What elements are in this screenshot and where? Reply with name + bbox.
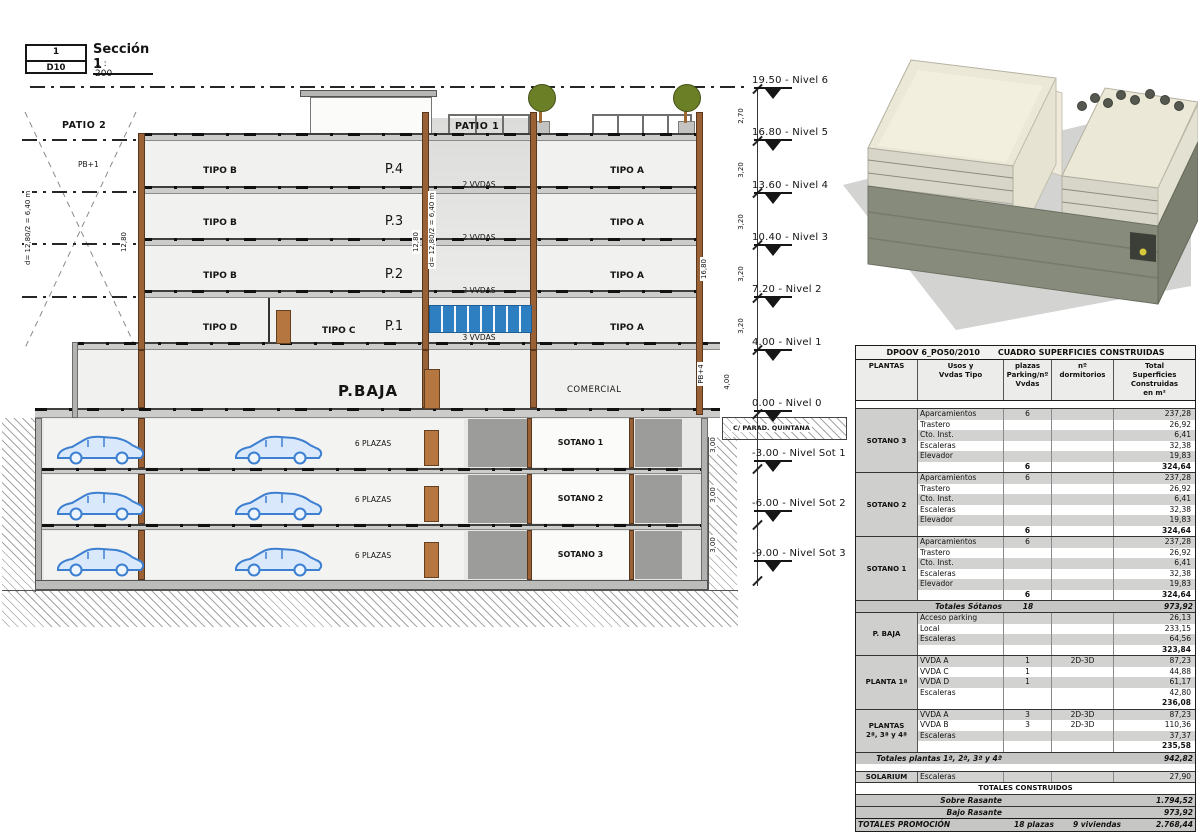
level-label: 16.80 - Nivel 5 — [752, 127, 852, 138]
table-group-rows: VVDA A12D-3D87,23VVDA C144,88VVDA D161,1… — [918, 656, 1195, 709]
level-marker: 16.80 - Nivel 5 — [752, 127, 852, 151]
cell-plazas — [1004, 430, 1052, 441]
table-row: Trastero26,92 — [918, 420, 1195, 431]
total-label: Totales Sótanos — [856, 601, 1004, 612]
total-dormitorios — [1052, 601, 1114, 612]
total-superficie: 973,92 — [1114, 601, 1195, 612]
cell-plazas — [1004, 515, 1052, 526]
cell-plazas: 6 — [1004, 409, 1052, 420]
cell-dormitorios — [1052, 409, 1114, 420]
level-triangle-icon — [765, 512, 781, 522]
final-viviendas: 9 viviendas — [1062, 819, 1132, 831]
cell-superficie: 6,41 — [1114, 430, 1193, 441]
cell-dormitorios — [1052, 590, 1114, 601]
cell-dormitorios — [1052, 462, 1114, 473]
cell-uso: Cto. Inst. — [918, 494, 1004, 505]
table-row: Local233,15 — [918, 624, 1195, 635]
cell-uso: Escaleras — [918, 505, 1004, 516]
level-label: -3.00 - Nivel Sot 1 — [752, 448, 852, 459]
cell-superficie: 64,56 — [1114, 634, 1193, 645]
table-row: Cto. Inst.6,41 — [918, 558, 1195, 569]
cell-superficie: 236,08 — [1114, 698, 1193, 709]
table-row: Escaleras32,38 — [918, 441, 1195, 452]
table-group-rows: Acceso parking26,13Local233,15Escaleras6… — [918, 613, 1195, 655]
cell-uso: Escaleras — [918, 731, 1004, 742]
cell-plazas — [1004, 494, 1052, 505]
table-row: Escaleras42,80 — [918, 688, 1195, 699]
table-total-row: Bajo Rasante973,92 — [856, 806, 1195, 818]
cell-dormitorios — [1052, 772, 1114, 783]
total-label: Sobre Rasante — [856, 795, 1004, 806]
cell-plazas — [1004, 698, 1052, 709]
cell-dormitorios — [1052, 645, 1114, 656]
table-planta-label: PLANTAS 2ª, 3ª y 4ª — [856, 710, 918, 752]
cell-plazas — [1004, 569, 1052, 580]
table-subtotal-row: 236,08 — [918, 698, 1195, 709]
cell-uso: VVDA A — [918, 656, 1004, 667]
cell-uso: Elevador — [918, 451, 1004, 462]
cell-dormitorios — [1052, 526, 1114, 537]
table-group-rows: VVDA A32D-3D87,23VVDA B32D-3D110,36Escal… — [918, 710, 1195, 752]
cell-plazas — [1004, 772, 1052, 783]
cell-uso: Escaleras — [918, 441, 1004, 452]
cell-dormitorios — [1052, 677, 1114, 688]
table-subtotal-row: 6324,64 — [918, 590, 1195, 601]
table-row: VVDA D161,17 — [918, 677, 1195, 688]
cell-uso — [918, 645, 1004, 656]
cell-uso: Trastero — [918, 548, 1004, 559]
table-spacer — [856, 401, 1195, 408]
table-subtotal-row: 235,58 — [918, 741, 1195, 752]
cell-dormitorios — [1052, 484, 1114, 495]
level-label: -6.00 - Nivel Sot 2 — [752, 498, 852, 509]
table-subtotal-row: 6324,64 — [918, 526, 1195, 537]
cell-plazas: 3 — [1004, 710, 1052, 721]
table-group: SOTANO 1Aparcamientos6237,28Trastero26,9… — [856, 536, 1195, 600]
cell-plazas — [1004, 451, 1052, 462]
cell-dormitorios — [1052, 548, 1114, 559]
cell-plazas — [1004, 645, 1052, 656]
level-marker: 19.50 - Nivel 6 — [752, 75, 852, 99]
cell-superficie: 37,37 — [1114, 731, 1193, 742]
table-spacer — [856, 764, 1195, 771]
drawing-sheet: { "title_block": { "number": "1", "sheet… — [0, 0, 1200, 812]
cell-uso — [918, 590, 1004, 601]
cell-uso — [918, 698, 1004, 709]
table-planta-label: P. BAJA — [856, 613, 918, 655]
table-row: Trastero26,92 — [918, 548, 1195, 559]
cell-plazas: 1 — [1004, 667, 1052, 678]
table-title: CUADRO SUPERFICIES CONSTRUIDAS — [998, 348, 1165, 357]
cell-dormitorios — [1052, 430, 1114, 441]
level-label: 19.50 - Nivel 6 — [752, 75, 852, 86]
cell-uso: VVDA D — [918, 677, 1004, 688]
cell-uso: VVDA A — [918, 710, 1004, 721]
total-plazas — [1004, 753, 1052, 764]
level-label: 10.40 - Nivel 3 — [752, 232, 852, 243]
level-label: 0.00 - Nivel 0 — [752, 398, 852, 409]
cell-plazas: 3 — [1004, 720, 1052, 731]
cell-uso: Elevador — [918, 515, 1004, 526]
table-row: VVDA A12D-3D87,23 — [918, 656, 1195, 667]
cell-dormitorios — [1052, 515, 1114, 526]
level-marker: -9.00 - Nivel Sot 3 — [752, 548, 852, 572]
final-label: TOTALES PROMOCIÓN — [856, 819, 1006, 831]
cell-plazas — [1004, 505, 1052, 516]
table-row: Aparcamientos6237,28 — [918, 537, 1195, 548]
table-group: PLANTAS 2ª, 3ª y 4ªVVDA A32D-3D87,23VVDA… — [856, 709, 1195, 752]
cell-superficie: 324,64 — [1114, 462, 1193, 473]
level-triangle-icon — [765, 298, 781, 308]
cell-dormitorios — [1052, 698, 1114, 709]
final-superficie: 2.768,44 — [1132, 819, 1195, 831]
cell-superficie: 26,92 — [1114, 484, 1193, 495]
table-row: Escaleras64,56 — [918, 634, 1195, 645]
table-group: PLANTA 1ªVVDA A12D-3D87,23VVDA C144,88VV… — [856, 655, 1195, 709]
cell-dormitorios — [1052, 494, 1114, 505]
table-total-row: Totales plantas 1ª, 2ª, 3ª y 4ª942,82 — [856, 752, 1195, 764]
total-plazas — [1004, 795, 1052, 806]
total-plazas: 18 — [1004, 601, 1052, 612]
cell-superficie: 42,80 — [1114, 688, 1193, 699]
level-marker: 7.20 - Nivel 2 — [752, 284, 852, 308]
table-ref: DPOOV 6_PO50/2010 — [887, 348, 980, 357]
cell-dormitorios: 2D-3D — [1052, 720, 1114, 731]
level-triangle-icon — [765, 194, 781, 204]
cell-uso: Escaleras — [918, 772, 1004, 783]
table-header: PLANTASUsos y Vvdas Tipoplazas Parking/n… — [856, 360, 1195, 401]
level-triangle-icon — [765, 412, 781, 422]
table-planta-label: SOLARIUM — [856, 772, 918, 783]
table-planta-label: PLANTA 1ª — [856, 656, 918, 709]
table-total-row: Sobre Rasante1.794,52 — [856, 794, 1195, 806]
table-row: Cto. Inst.6,41 — [918, 494, 1195, 505]
cell-superficie: 324,64 — [1114, 526, 1193, 537]
table-row: Escaleras37,37 — [918, 731, 1195, 742]
cell-dormitorios — [1052, 473, 1114, 484]
level-label: 13.60 - Nivel 4 — [752, 180, 852, 191]
cell-dormitorios — [1052, 537, 1114, 548]
cell-plazas — [1004, 688, 1052, 699]
cell-uso: Acceso parking — [918, 613, 1004, 624]
table-row: Cto. Inst.6,41 — [918, 430, 1195, 441]
cell-superficie: 32,38 — [1114, 505, 1193, 516]
level-label: 7.20 - Nivel 2 — [752, 284, 852, 295]
surface-table: DPOOV 6_PO50/2010 CUADRO SUPERFICIES CON… — [855, 345, 1196, 832]
level-marker: 0.00 - Nivel 0 — [752, 398, 852, 422]
cell-superficie: 19,83 — [1114, 451, 1193, 462]
table-row: Escaleras32,38 — [918, 569, 1195, 580]
cell-uso: Aparcamientos — [918, 409, 1004, 420]
cell-superficie: 27,90 — [1114, 772, 1193, 783]
cell-plazas — [1004, 558, 1052, 569]
level-label: 4.00 - Nivel 1 — [752, 337, 852, 348]
table-group: P. BAJAAcceso parking26,13Local233,15Esc… — [856, 612, 1195, 655]
table-row: Elevador19,83 — [918, 515, 1195, 526]
cell-dormitorios — [1052, 741, 1114, 752]
table-row: Aparcamientos6237,28 — [918, 473, 1195, 484]
cell-dormitorios — [1052, 731, 1114, 742]
table-planta-label: SOTANO 3 — [856, 409, 918, 472]
table-group-rows: Aparcamientos6237,28Trastero26,92Cto. In… — [918, 409, 1195, 472]
table-column-header: nº dormitorios — [1052, 360, 1114, 400]
table-column-header: Total Superficies Construidas en m² — [1114, 360, 1195, 400]
cell-uso: Trastero — [918, 484, 1004, 495]
level-triangle-icon — [765, 462, 781, 472]
cell-uso: Cto. Inst. — [918, 430, 1004, 441]
total-label: Totales plantas 1ª, 2ª, 3ª y 4ª — [856, 753, 1004, 764]
cell-dormitorios — [1052, 505, 1114, 516]
table-row: Acceso parking26,13 — [918, 613, 1195, 624]
axonometric-3d-view — [838, 36, 1198, 346]
cell-superficie: 6,41 — [1114, 558, 1193, 569]
cell-superficie: 237,28 — [1114, 409, 1193, 420]
cell-uso: Trastero — [918, 420, 1004, 431]
table-column-header: PLANTAS — [856, 360, 918, 400]
table-row: VVDA B32D-3D110,36 — [918, 720, 1195, 731]
level-marker: 13.60 - Nivel 4 — [752, 180, 852, 204]
total-plazas — [1004, 807, 1052, 818]
table-row: Elevador19,83 — [918, 579, 1195, 590]
level-triangle-icon — [765, 89, 781, 99]
cell-uso: Aparcamientos — [918, 473, 1004, 484]
cell-plazas: 6 — [1004, 473, 1052, 484]
cell-uso: VVDA C — [918, 667, 1004, 678]
cell-superficie: 32,38 — [1114, 569, 1193, 580]
cell-plazas — [1004, 613, 1052, 624]
cell-superficie: 237,28 — [1114, 473, 1193, 484]
cell-plazas — [1004, 579, 1052, 590]
table-body: SOTANO 3Aparcamientos6237,28Trastero26,9… — [856, 401, 1195, 831]
total-superficie: 942,82 — [1114, 753, 1195, 764]
cell-uso — [918, 462, 1004, 473]
level-triangle-icon — [765, 562, 781, 572]
cell-dormitorios — [1052, 558, 1114, 569]
level-marker: 4.00 - Nivel 1 — [752, 337, 852, 361]
cell-plazas: 1 — [1004, 656, 1052, 667]
level-marker: 10.40 - Nivel 3 — [752, 232, 852, 256]
cell-superficie: 19,83 — [1114, 579, 1193, 590]
table-subtotal-row: 323,84 — [918, 645, 1195, 656]
table-row: Aparcamientos6237,28 — [918, 409, 1195, 420]
cell-dormitorios: 2D-3D — [1052, 710, 1114, 721]
cell-superficie: 26,92 — [1114, 548, 1193, 559]
cell-uso: VVDA B — [918, 720, 1004, 731]
cell-plazas: 6 — [1004, 590, 1052, 601]
cell-superficie: 324,64 — [1114, 590, 1193, 601]
cell-superficie: 26,13 — [1114, 613, 1193, 624]
table-row: Escaleras27,90 — [918, 772, 1195, 783]
total-dormitorios — [1052, 753, 1114, 764]
cell-uso: Cto. Inst. — [918, 558, 1004, 569]
cell-dormitorios — [1052, 441, 1114, 452]
cell-superficie: 6,41 — [1114, 494, 1193, 505]
cell-plazas: 1 — [1004, 677, 1052, 688]
total-superficie: 973,92 — [1114, 807, 1195, 818]
building-section-drawing: 6 PLAZASSOTANO 16 PLAZASSOTANO 26 PLAZAS… — [0, 0, 850, 812]
cell-superficie: 87,23 — [1114, 710, 1193, 721]
cell-uso: Elevador — [918, 579, 1004, 590]
level-triangle-icon — [765, 246, 781, 256]
cell-plazas: 6 — [1004, 537, 1052, 548]
level-markers: 19.50 - Nivel 616.80 - Nivel 513.60 - Ni… — [0, 0, 860, 812]
cell-superficie: 233,15 — [1114, 624, 1193, 635]
cell-superficie: 87,23 — [1114, 656, 1193, 667]
table-row: Elevador19,83 — [918, 451, 1195, 462]
cell-dormitorios — [1052, 688, 1114, 699]
cell-uso — [918, 526, 1004, 537]
total-superficie: 1.794,52 — [1114, 795, 1195, 806]
level-triangle-icon — [765, 141, 781, 151]
table-group: SOTANO 2Aparcamientos6237,28Trastero26,9… — [856, 472, 1195, 536]
table-row: VVDA A32D-3D87,23 — [918, 710, 1195, 721]
table-final-row: TOTALES PROMOCIÓN18 plazas9 viviendas2.7… — [856, 818, 1195, 831]
cell-plazas — [1004, 420, 1052, 431]
cell-dormitorios — [1052, 579, 1114, 590]
cell-plazas — [1004, 548, 1052, 559]
cell-superficie: 237,28 — [1114, 537, 1193, 548]
cell-uso: Escaleras — [918, 634, 1004, 645]
cell-superficie: 235,58 — [1114, 741, 1193, 752]
cell-dormitorios: 2D-3D — [1052, 656, 1114, 667]
cell-superficie: 44,88 — [1114, 667, 1193, 678]
level-label: -9.00 - Nivel Sot 3 — [752, 548, 852, 559]
table-group-rows: Aparcamientos6237,28Trastero26,92Cto. In… — [918, 537, 1195, 600]
level-marker: -6.00 - Nivel Sot 2 — [752, 498, 852, 522]
cell-plazas — [1004, 624, 1052, 635]
cell-uso: Escaleras — [918, 569, 1004, 580]
table-planta-label: SOTANO 1 — [856, 537, 918, 600]
table-group-rows: Aparcamientos6237,28Trastero26,92Cto. In… — [918, 473, 1195, 536]
cell-dormitorios — [1052, 624, 1114, 635]
cell-dormitorios — [1052, 613, 1114, 624]
cell-superficie: 323,84 — [1114, 645, 1193, 656]
cell-dormitorios — [1052, 634, 1114, 645]
final-plazas: 18 plazas — [1006, 819, 1062, 831]
cell-plazas: 6 — [1004, 526, 1052, 537]
cell-uso — [918, 741, 1004, 752]
total-dormitorios — [1052, 795, 1114, 806]
level-triangle-icon — [765, 351, 781, 361]
cell-plazas: 6 — [1004, 462, 1052, 473]
table-column-header: plazas Parking/nº Vvdas — [1004, 360, 1052, 400]
cell-plazas — [1004, 731, 1052, 742]
cell-uso: Escaleras — [918, 688, 1004, 699]
cell-superficie: 26,92 — [1114, 420, 1193, 431]
table-group: SOLARIUMEscaleras27,90 — [856, 771, 1195, 783]
table-total-row: Totales Sótanos18973,92 — [856, 600, 1195, 612]
cell-plazas — [1004, 741, 1052, 752]
table-title-row: DPOOV 6_PO50/2010 CUADRO SUPERFICIES CON… — [856, 346, 1195, 360]
cell-superficie: 110,36 — [1114, 720, 1193, 731]
table-row: VVDA C144,88 — [918, 667, 1195, 678]
table-banner: TOTALES CONSTRUIDOS — [856, 782, 1195, 794]
cell-dormitorios — [1052, 569, 1114, 580]
cell-superficie: 32,38 — [1114, 441, 1193, 452]
level-marker: -3.00 - Nivel Sot 1 — [752, 448, 852, 472]
table-subtotal-row: 6324,64 — [918, 462, 1195, 473]
table-group-rows: Escaleras27,90 — [918, 772, 1195, 783]
table-row: Trastero26,92 — [918, 484, 1195, 495]
cell-plazas — [1004, 484, 1052, 495]
cell-superficie: 19,83 — [1114, 515, 1193, 526]
table-column-header: Usos y Vvdas Tipo — [918, 360, 1004, 400]
cell-dormitorios — [1052, 451, 1114, 462]
cell-dormitorios — [1052, 667, 1114, 678]
cell-plazas — [1004, 634, 1052, 645]
cell-uso: Local — [918, 624, 1004, 635]
cell-dormitorios — [1052, 420, 1114, 431]
table-row: Escaleras32,38 — [918, 505, 1195, 516]
cell-plazas — [1004, 441, 1052, 452]
total-dormitorios — [1052, 807, 1114, 818]
table-planta-label: SOTANO 2 — [856, 473, 918, 536]
cell-uso: Aparcamientos — [918, 537, 1004, 548]
cell-superficie: 61,17 — [1114, 677, 1193, 688]
total-label: Bajo Rasante — [856, 807, 1004, 818]
table-group: SOTANO 3Aparcamientos6237,28Trastero26,9… — [856, 408, 1195, 472]
